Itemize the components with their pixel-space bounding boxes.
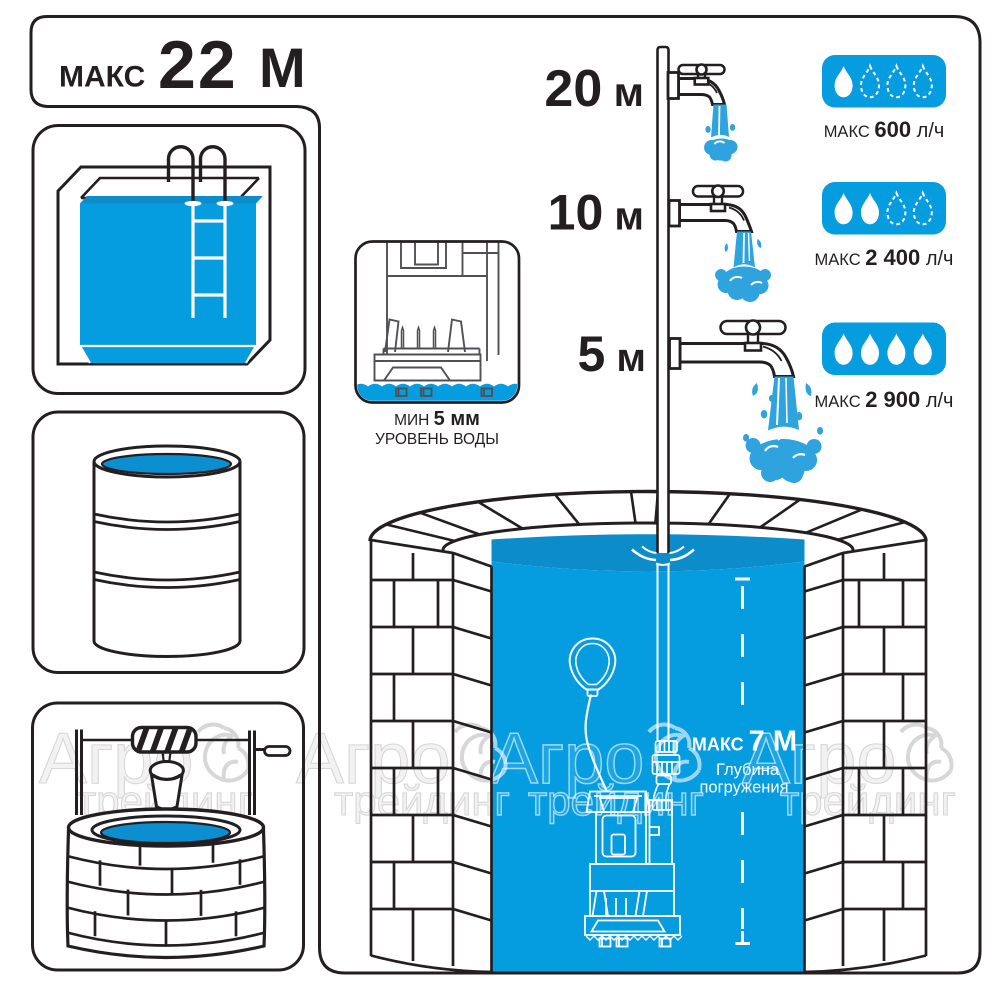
svg-text:Глубина: Глубина [716,761,780,779]
svg-text:20 м: 20 м [544,60,644,118]
svg-text:22: 22 [158,27,238,103]
svg-text:М: М [259,36,306,99]
svg-text:погружения: погружения [699,779,788,797]
svg-text:МИН 5 мм: МИН 5 мм [394,408,480,430]
svg-text:УРОВЕНЬ ВОДЫ: УРОВЕНЬ ВОДЫ [375,431,499,448]
svg-text:МАКС: МАКС [59,61,145,94]
svg-text:трейдинг: трейдинг [780,777,956,824]
svg-text:трейдинг: трейдинг [334,777,510,824]
svg-text:трейдинг: трейдинг [528,777,704,824]
